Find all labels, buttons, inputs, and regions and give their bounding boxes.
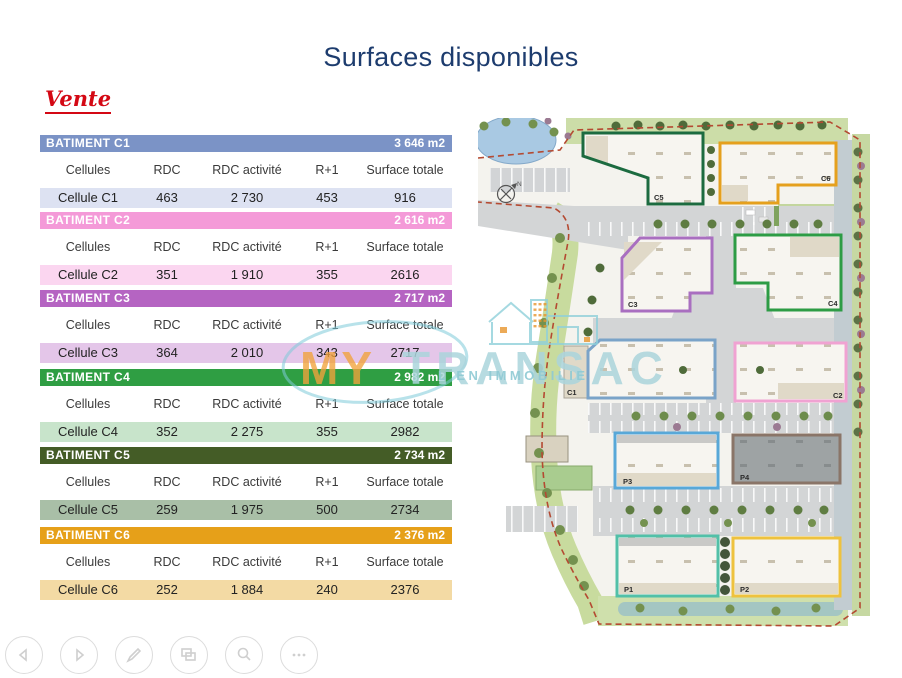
table-header-band: BATIMENT C1 3 646 m2	[40, 135, 452, 152]
pen-button[interactable]	[115, 636, 153, 674]
utility-building	[526, 436, 568, 462]
cell-rdc-activite: 1 975	[198, 500, 296, 520]
column-headers: Cellules RDC RDC activité R+1 Surface to…	[40, 464, 452, 500]
cell-r1: 500	[296, 500, 358, 520]
slides-icon	[180, 646, 198, 664]
table-batiment-c3: BATIMENT C3 2 717 m2 Cellules RDC RDC ac…	[40, 290, 452, 363]
previous-button[interactable]	[5, 636, 43, 674]
col-rdc-activite: RDC activité	[198, 397, 296, 411]
col-rdc-activite: RDC activité	[198, 555, 296, 569]
col-r1: R+1	[296, 475, 358, 489]
col-surface-totale: Surface totale	[358, 475, 452, 489]
cell-r1: 343	[296, 343, 358, 363]
map-label-c6: C6	[821, 174, 831, 183]
col-rdc: RDC	[136, 163, 198, 177]
col-rdc: RDC	[136, 397, 198, 411]
col-cellules: Cellules	[40, 475, 136, 489]
map-label-p2: P2	[740, 585, 749, 594]
cell-surface: 916	[358, 188, 452, 208]
map-label-p4: P4	[740, 473, 750, 482]
cell-name: Cellule C6	[40, 580, 136, 600]
col-rdc: RDC	[136, 240, 198, 254]
site-plan-svg: N C5 C6 C3 C4 C1 C2 P3 P4 P1 P2	[478, 118, 878, 642]
more-icon	[290, 646, 308, 664]
cell-rdc-activite: 1 884	[198, 580, 296, 600]
cell-surface: 2982	[358, 422, 452, 442]
data-row: Cellule C6 252 1 884 240 2376	[40, 580, 452, 600]
slides-button[interactable]	[170, 636, 208, 674]
table-batiment-c1: BATIMENT C1 3 646 m2 Cellules RDC RDC ac…	[40, 135, 452, 208]
cell-name: Cellule C2	[40, 265, 136, 285]
map-label-c5: C5	[654, 193, 664, 202]
page-title: Surfaces disponibles	[0, 42, 902, 73]
cell-rdc: 463	[136, 188, 198, 208]
cell-surface: 2717	[358, 343, 452, 363]
zoom-icon	[235, 646, 253, 664]
batiment-area: 2 376 m2	[394, 527, 452, 544]
col-rdc: RDC	[136, 318, 198, 332]
cell-name: Cellule C5	[40, 500, 136, 520]
compass-north-label: N	[517, 181, 522, 188]
map-label-c1: C1	[567, 388, 577, 397]
column-headers: Cellules RDC RDC activité R+1 Surface to…	[40, 544, 452, 580]
cell-r1: 355	[296, 422, 358, 442]
batiment-area: 3 646 m2	[394, 135, 452, 152]
table-batiment-c5: BATIMENT C5 2 734 m2 Cellules RDC RDC ac…	[40, 447, 452, 520]
col-cellules: Cellules	[40, 555, 136, 569]
col-rdc: RDC	[136, 475, 198, 489]
table-batiment-c6: BATIMENT C6 2 376 m2 Cellules RDC RDC ac…	[40, 527, 452, 600]
col-r1: R+1	[296, 240, 358, 254]
map-label-p1: P1	[624, 585, 633, 594]
table-batiment-c4: BATIMENT C4 2 982 m2 Cellules RDC RDC ac…	[40, 369, 452, 442]
cell-rdc: 352	[136, 422, 198, 442]
col-rdc-activite: RDC activité	[198, 163, 296, 177]
data-row: Cellule C2 351 1 910 355 2616	[40, 265, 452, 285]
cell-rdc-activite: 2 275	[198, 422, 296, 442]
cell-rdc: 351	[136, 265, 198, 285]
pen-icon	[125, 646, 143, 664]
col-rdc-activite: RDC activité	[198, 475, 296, 489]
data-row: Cellule C5 259 1 975 500 2734	[40, 500, 452, 520]
col-cellules: Cellules	[40, 397, 136, 411]
cell-surface: 2734	[358, 500, 452, 520]
col-rdc-activite: RDC activité	[198, 318, 296, 332]
data-row: Cellule C1 463 2 730 453 916	[40, 188, 452, 208]
batiment-title: BATIMENT C1	[40, 135, 130, 152]
map-label-p3: P3	[623, 477, 632, 486]
column-headers: Cellules RDC RDC activité R+1 Surface to…	[40, 152, 452, 188]
table-header-band: BATIMENT C5 2 734 m2	[40, 447, 452, 464]
cell-name: Cellule C4	[40, 422, 136, 442]
col-cellules: Cellules	[40, 318, 136, 332]
cell-name: Cellule C3	[40, 343, 136, 363]
batiment-title: BATIMENT C6	[40, 527, 130, 544]
column-headers: Cellules RDC RDC activité R+1 Surface to…	[40, 386, 452, 422]
cell-r1: 355	[296, 265, 358, 285]
col-r1: R+1	[296, 318, 358, 332]
zoom-button[interactable]	[225, 636, 263, 674]
batiment-title: BATIMENT C3	[40, 290, 130, 307]
cell-rdc-activite: 2 730	[198, 188, 296, 208]
cell-name: Cellule C1	[40, 188, 136, 208]
batiment-area: 2 717 m2	[394, 290, 452, 307]
map-label-c2: C2	[833, 391, 843, 400]
col-cellules: Cellules	[40, 163, 136, 177]
data-row: Cellule C4 352 2 275 355 2982	[40, 422, 452, 442]
cell-surface: 2616	[358, 265, 452, 285]
col-surface-totale: Surface totale	[358, 318, 452, 332]
more-button[interactable]	[280, 636, 318, 674]
table-batiment-c2: BATIMENT C2 2 616 m2 Cellules RDC RDC ac…	[40, 212, 452, 285]
cell-rdc: 259	[136, 500, 198, 520]
col-r1: R+1	[296, 163, 358, 177]
viewer-toolbar	[5, 636, 318, 674]
cell-rdc: 252	[136, 580, 198, 600]
col-surface-totale: Surface totale	[358, 163, 452, 177]
col-r1: R+1	[296, 555, 358, 569]
cell-r1: 453	[296, 188, 358, 208]
table-header-band: BATIMENT C4 2 982 m2	[40, 369, 452, 386]
col-rdc-activite: RDC activité	[198, 240, 296, 254]
sale-type-label: Vente	[45, 86, 111, 114]
table-header-band: BATIMENT C2 2 616 m2	[40, 212, 452, 229]
batiment-title: BATIMENT C2	[40, 212, 130, 229]
slide-page: Surfaces disponibles Vente BATIMENT C1 3…	[0, 0, 902, 678]
column-headers: Cellules RDC RDC activité R+1 Surface to…	[40, 307, 452, 343]
col-surface-totale: Surface totale	[358, 397, 452, 411]
col-r1: R+1	[296, 397, 358, 411]
col-surface-totale: Surface totale	[358, 240, 452, 254]
col-cellules: Cellules	[40, 240, 136, 254]
batiment-area: 2 616 m2	[394, 212, 452, 229]
cell-rdc-activite: 2 010	[198, 343, 296, 363]
map-label-c3: C3	[628, 300, 638, 309]
site-plan-map: N C5 C6 C3 C4 C1 C2 P3 P4 P1 P2	[478, 118, 878, 642]
previous-icon	[16, 647, 32, 663]
map-label-c4: C4	[828, 299, 838, 308]
batiment-title: BATIMENT C5	[40, 447, 130, 464]
cell-rdc: 364	[136, 343, 198, 363]
hedge	[774, 206, 779, 226]
cell-rdc-activite: 1 910	[198, 265, 296, 285]
next-icon	[71, 647, 87, 663]
batiment-area: 2 734 m2	[394, 447, 452, 464]
data-row: Cellule C3 364 2 010 343 2717	[40, 343, 452, 363]
cell-surface: 2376	[358, 580, 452, 600]
table-header-band: BATIMENT C3 2 717 m2	[40, 290, 452, 307]
batiment-area: 2 982 m2	[394, 369, 452, 386]
table-header-band: BATIMENT C6 2 376 m2	[40, 527, 452, 544]
cell-r1: 240	[296, 580, 358, 600]
col-rdc: RDC	[136, 555, 198, 569]
col-surface-totale: Surface totale	[358, 555, 452, 569]
batiment-title: BATIMENT C4	[40, 369, 130, 386]
next-button[interactable]	[60, 636, 98, 674]
column-headers: Cellules RDC RDC activité R+1 Surface to…	[40, 229, 452, 265]
